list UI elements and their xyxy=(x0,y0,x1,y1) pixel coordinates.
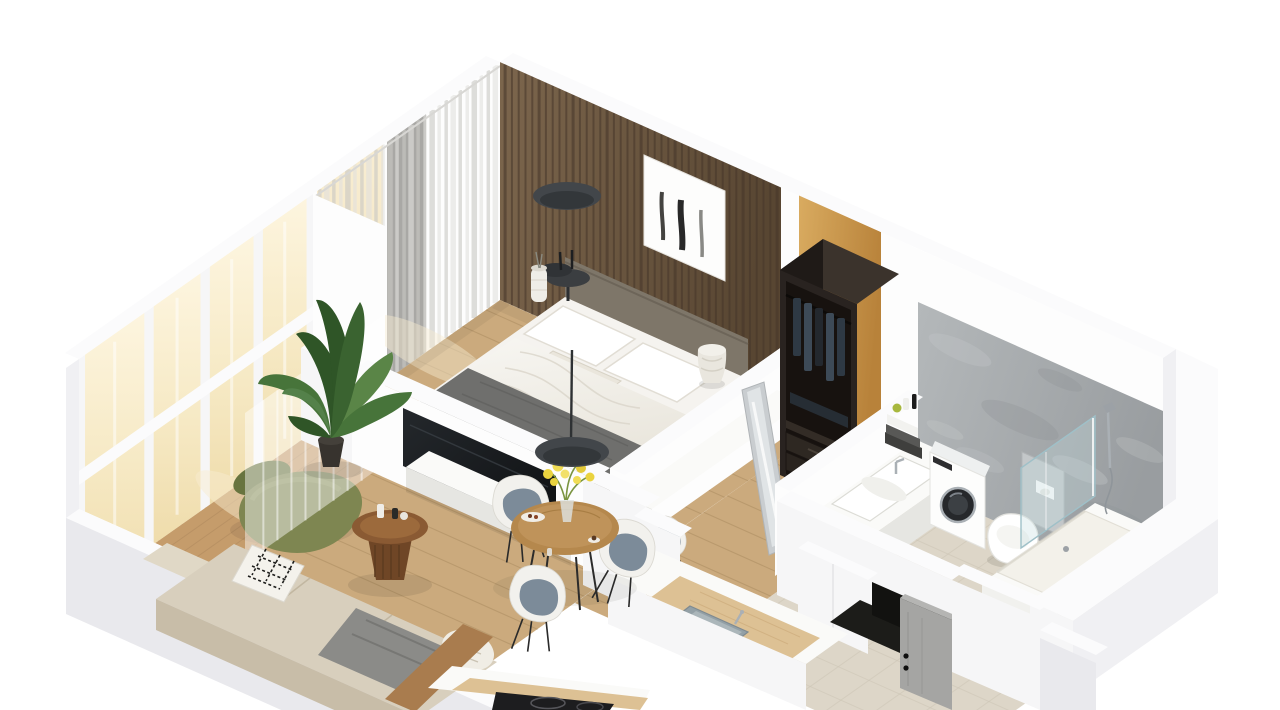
carved-stool xyxy=(698,344,726,389)
right-wall-upper xyxy=(1176,349,1218,519)
floor-plan-render xyxy=(0,0,1280,710)
candle-white xyxy=(377,504,384,518)
art-feather-3 xyxy=(701,210,702,257)
pendant-stem xyxy=(571,350,572,442)
cup xyxy=(592,536,597,541)
green-soap xyxy=(893,404,902,413)
tub-filler xyxy=(1063,546,1069,552)
plate xyxy=(521,512,545,522)
pendant-lamp-under xyxy=(543,447,601,466)
bedroom-ceiling-lamp-rim xyxy=(540,191,594,209)
candlestick xyxy=(560,252,561,270)
white-jar xyxy=(903,398,909,410)
glass-cup xyxy=(547,548,552,556)
art-feather-2 xyxy=(681,200,683,250)
dining-chair-front xyxy=(506,564,568,654)
kitchen-tap-head xyxy=(740,610,744,614)
candle-black xyxy=(392,508,398,519)
washer-door-glass xyxy=(948,495,968,515)
small-bowl xyxy=(400,512,408,520)
floor-plan-stage xyxy=(0,0,1280,710)
door-handle-dot-1 xyxy=(903,653,908,658)
black-bottle xyxy=(912,394,917,409)
art-feather-1 xyxy=(661,192,663,240)
door-handle-dot-2 xyxy=(903,665,908,670)
